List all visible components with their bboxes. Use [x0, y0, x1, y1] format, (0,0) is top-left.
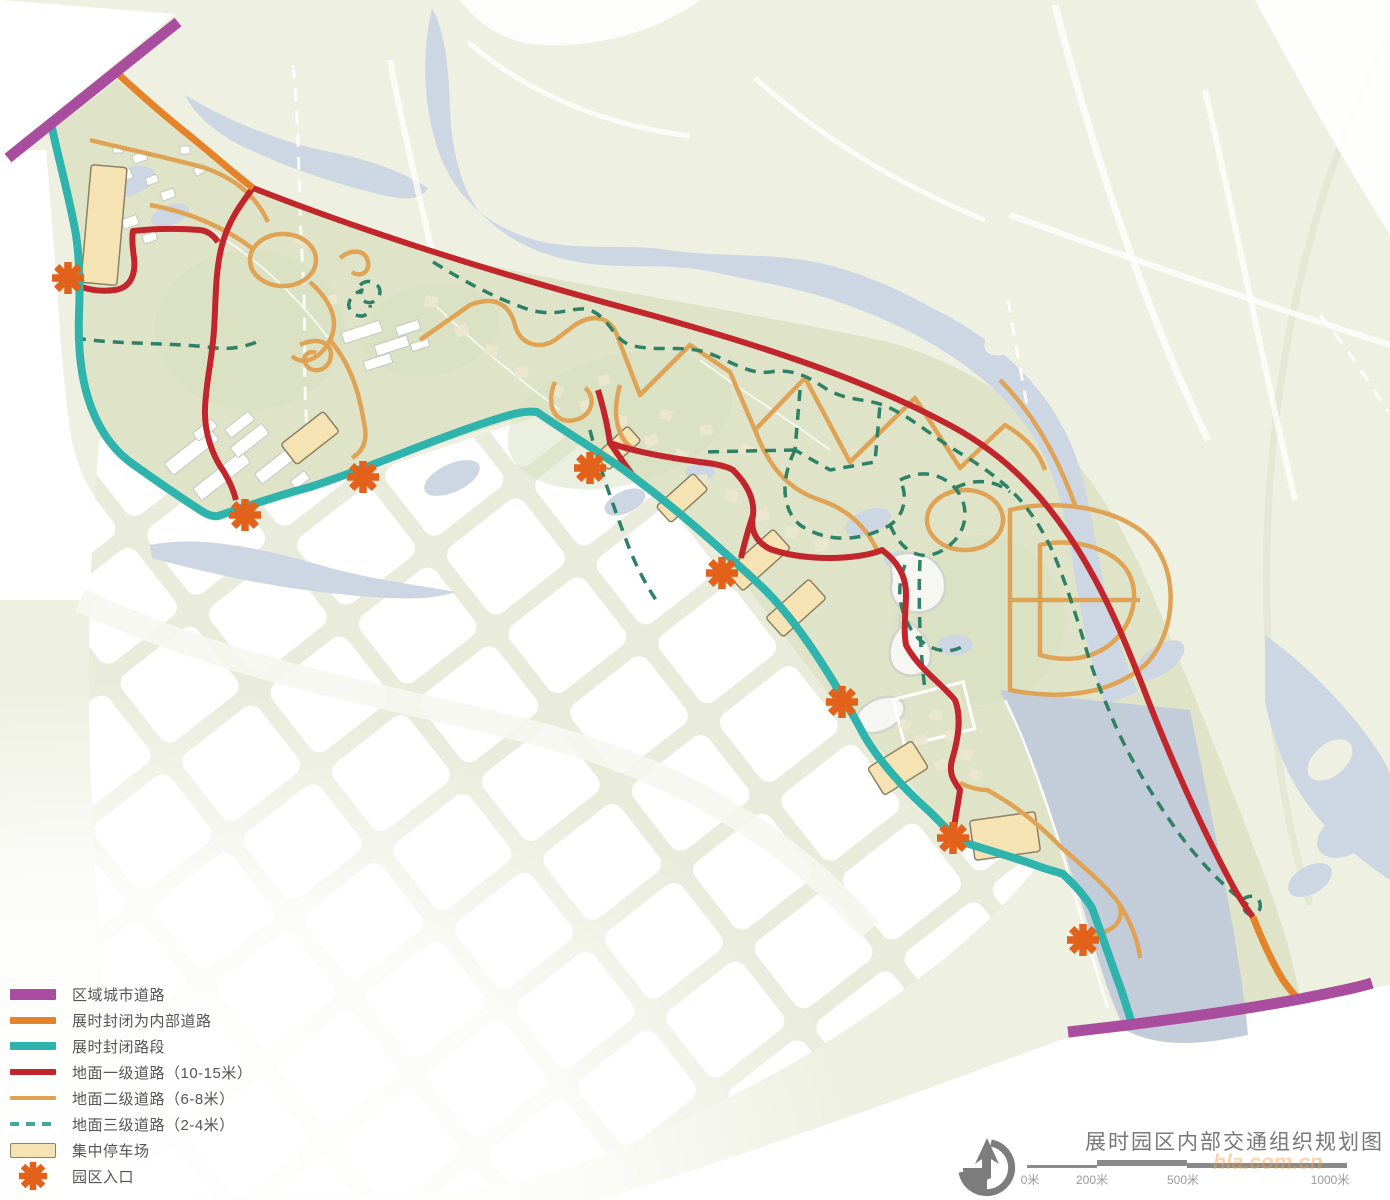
legend-item-entrance: 园区入口: [10, 1168, 252, 1184]
legend-label: 地面三级道路（2-4米）: [72, 1114, 235, 1135]
park-entrance-marker: [706, 557, 738, 589]
legend-item-closed-internal-road: 展时封闭为内部道路: [10, 1012, 252, 1028]
legend-label: 展时封闭为内部道路: [72, 1010, 212, 1031]
park-entrance-marker: [826, 686, 858, 718]
regional-city-road-swatch: [10, 989, 56, 1000]
park-entrance-marker: [937, 822, 969, 854]
park-entrance-icon: [18, 1161, 48, 1191]
watermark: hla.com.cn: [1158, 1152, 1378, 1174]
park-entrance-marker: [347, 461, 379, 493]
park-entrance-marker: [1067, 924, 1099, 956]
closed-internal-road-swatch: [10, 1017, 56, 1024]
secondary-road-swatch: [10, 1096, 56, 1101]
park-entrance-marker: [574, 452, 606, 484]
primary-road-swatch: [10, 1069, 56, 1075]
legend-item-primary-road: 地面一级道路（10-15米）: [10, 1064, 252, 1080]
park-entrance-marker: [229, 499, 261, 531]
legend-label: 展时封闭路段: [72, 1036, 165, 1057]
legend-item-regional-city-road: 区域城市道路: [10, 986, 252, 1002]
scale-label-200: 200米: [1076, 1173, 1108, 1187]
legend-item-closed-section: 展时封闭路段: [10, 1038, 252, 1054]
legend-item-secondary-road: 地面二级道路（6-8米）: [10, 1090, 252, 1106]
tertiary-road-swatch: [10, 1122, 56, 1127]
scale-label-500: 500米: [1167, 1173, 1199, 1187]
legend-label: 地面一级道路（10-15米）: [72, 1062, 252, 1083]
legend-label: 园区入口: [72, 1166, 134, 1187]
planning-map-page: 0米 200米 500米 1000米 区域城市道路 展时封闭为内部道路 展时封闭…: [0, 0, 1390, 1200]
legend-label: 区域城市道路: [72, 984, 165, 1005]
closed-section-swatch: [10, 1042, 56, 1050]
legend: 区域城市道路 展时封闭为内部道路 展时封闭路段 地面一级道路（10-15米） 地…: [10, 986, 252, 1184]
legend-label: 集中停车场: [72, 1140, 150, 1161]
legend-item-parking: 集中停车场: [10, 1142, 252, 1158]
park-entrance-marker: [52, 262, 84, 294]
scale-label-1000: 1000米: [1311, 1173, 1350, 1187]
parking-swatch: [10, 1143, 56, 1158]
scale-label-0: 0米: [1021, 1173, 1040, 1187]
legend-label: 地面二级道路（6-8米）: [72, 1088, 235, 1109]
legend-item-tertiary-road: 地面三级道路（2-4米）: [10, 1116, 252, 1132]
